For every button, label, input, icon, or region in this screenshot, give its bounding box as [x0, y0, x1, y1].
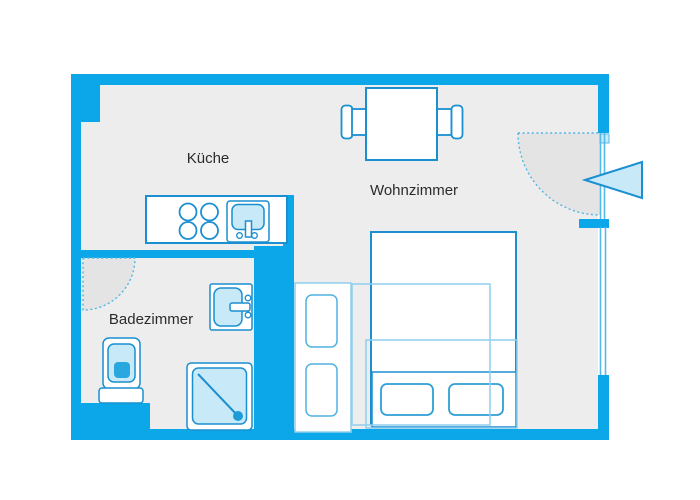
wardrobe-body — [295, 283, 351, 432]
wall-door-lintel — [579, 219, 609, 228]
wall-bathroom-top — [81, 250, 257, 258]
chair-right-backrest — [452, 106, 463, 139]
bed — [352, 232, 517, 428]
wall-right-bottom — [598, 375, 609, 440]
floor-plan: Küche Wohnzimmer Badezimmer — [0, 0, 700, 500]
kitchen-counter — [146, 196, 287, 243]
wall-left — [71, 85, 81, 405]
room-label-badezimmer: Badezimmer — [109, 311, 193, 328]
toilet-icon — [99, 338, 143, 403]
wardrobe — [295, 283, 351, 432]
shower-drain — [233, 411, 243, 421]
room-label-kueche: Küche — [187, 150, 230, 167]
room-label-wohnzimmer: Wohnzimmer — [370, 182, 458, 199]
toilet-flush — [114, 362, 130, 378]
shower-icon — [187, 363, 252, 430]
chair-left-seat — [352, 109, 367, 135]
chair-right-seat — [437, 109, 452, 135]
bathroom-sink-icon — [210, 284, 252, 330]
pillow-left — [381, 384, 433, 415]
wall-right-top — [598, 74, 609, 133]
dining-table — [366, 88, 437, 160]
chair-left-backrest — [342, 106, 353, 139]
wall-top — [71, 74, 609, 85]
kitchen-sink-icon — [227, 201, 269, 242]
window-right-wall — [601, 227, 606, 375]
wall-shaft-band — [254, 246, 294, 440]
pillow-right — [449, 384, 503, 415]
